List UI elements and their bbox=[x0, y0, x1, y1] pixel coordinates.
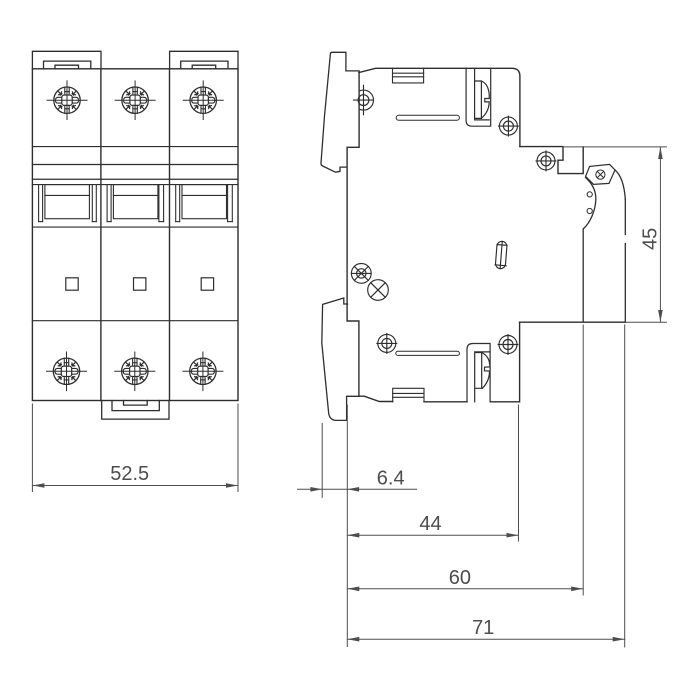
svg-text:45: 45 bbox=[640, 228, 662, 250]
svg-text:60: 60 bbox=[449, 567, 471, 589]
svg-text:6.4: 6.4 bbox=[377, 468, 405, 490]
svg-text:44: 44 bbox=[419, 513, 441, 535]
svg-text:71: 71 bbox=[472, 617, 494, 639]
svg-text:52.5: 52.5 bbox=[110, 463, 149, 485]
